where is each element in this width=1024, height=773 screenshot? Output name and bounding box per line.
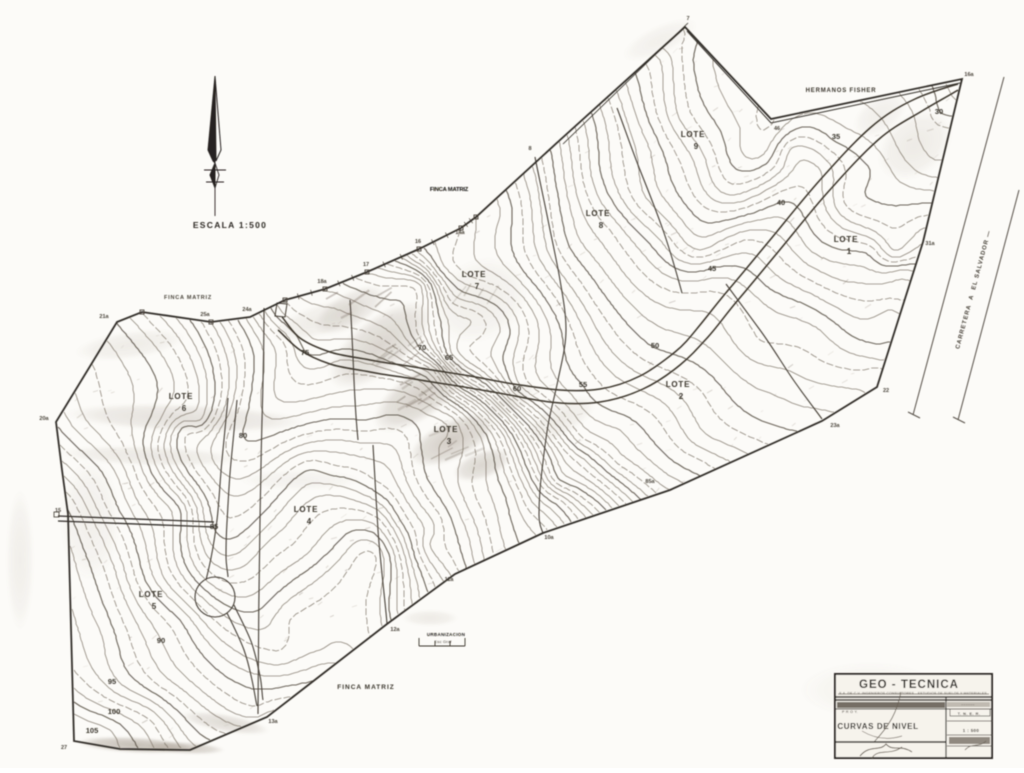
- svg-text:17: 17: [363, 262, 369, 268]
- svg-text:20a: 20a: [39, 416, 49, 422]
- svg-text:13a: 13a: [268, 719, 278, 725]
- svg-text:10a: 10a: [544, 535, 554, 541]
- svg-text:90: 90: [157, 636, 165, 645]
- svg-text:55: 55: [579, 380, 587, 389]
- svg-text:LOTE: LOTE: [462, 270, 487, 279]
- svg-text:100: 100: [108, 707, 121, 716]
- svg-text:16a: 16a: [964, 72, 974, 78]
- svg-text:1: 1: [847, 247, 852, 256]
- svg-text:18a: 18a: [317, 279, 327, 285]
- svg-text:LOTE: LOTE: [681, 130, 706, 139]
- svg-text:P R O Y.: P R O Y.: [842, 710, 858, 714]
- svg-text:T. N. E. R.: T. N. E. R.: [958, 712, 981, 716]
- svg-text:85a: 85a: [645, 479, 655, 485]
- svg-text:LOTE: LOTE: [294, 505, 319, 514]
- svg-text:6: 6: [182, 404, 187, 413]
- svg-text:85: 85: [210, 522, 218, 531]
- svg-text:3: 3: [447, 437, 452, 446]
- svg-text:16: 16: [415, 239, 421, 245]
- svg-text:FINCA MATRIZ: FINCA MATRIZ: [430, 187, 469, 193]
- svg-text:75: 75: [301, 348, 309, 357]
- svg-text:LOTE: LOTE: [834, 235, 859, 244]
- svg-text:7: 7: [475, 282, 480, 291]
- svg-text:ESCALA 1:500: ESCALA 1:500: [193, 220, 267, 230]
- svg-text:12a: 12a: [390, 627, 400, 633]
- svg-text:70: 70: [418, 343, 426, 352]
- svg-text:LOTE: LOTE: [169, 392, 194, 401]
- svg-text:22: 22: [883, 388, 889, 394]
- svg-text:35: 35: [832, 132, 840, 141]
- svg-text:Esc Graf: Esc Graf: [434, 639, 452, 644]
- svg-text:25a: 25a: [200, 312, 210, 318]
- svg-text:27: 27: [61, 745, 67, 751]
- svg-text:80: 80: [239, 431, 247, 440]
- svg-text:40: 40: [777, 198, 785, 207]
- svg-text:65: 65: [445, 353, 453, 362]
- svg-text:FINCA MATRIZ: FINCA MATRIZ: [337, 684, 395, 691]
- svg-text:8: 8: [528, 146, 531, 152]
- svg-text:23a: 23a: [830, 423, 840, 429]
- svg-text:14a: 14a: [455, 230, 465, 236]
- svg-text:2: 2: [679, 392, 684, 401]
- svg-text:FINCA MATRIZ: FINCA MATRIZ: [164, 295, 212, 301]
- svg-text:LOTE: LOTE: [434, 425, 459, 434]
- svg-text:4: 4: [307, 517, 312, 526]
- svg-text:24a: 24a: [242, 307, 252, 313]
- svg-text:60: 60: [513, 384, 521, 393]
- svg-text:45: 45: [708, 264, 716, 273]
- svg-text:15: 15: [55, 508, 61, 514]
- svg-text:50: 50: [651, 341, 659, 350]
- svg-text:95: 95: [108, 677, 116, 686]
- svg-text:HERMANOS FISHER: HERMANOS FISHER: [806, 88, 877, 94]
- svg-text:1 : 500: 1 : 500: [963, 728, 980, 733]
- svg-text:46: 46: [774, 126, 780, 132]
- svg-text:LOTE: LOTE: [586, 209, 611, 218]
- svg-text:8: 8: [599, 221, 604, 230]
- svg-text:7: 7: [686, 16, 689, 22]
- svg-text:105: 105: [86, 726, 99, 735]
- svg-text:21a: 21a: [99, 314, 109, 320]
- svg-text:URBANIZACION: URBANIZACION: [427, 632, 465, 637]
- svg-text:S.A. DE C.V. INGENIEROS CONSUL: S.A. DE C.V. INGENIEROS CONSULTORES - ES…: [839, 692, 987, 696]
- svg-text:5: 5: [152, 602, 157, 611]
- svg-text:31a: 31a: [925, 241, 935, 247]
- svg-text:9: 9: [694, 142, 699, 151]
- svg-text:11a: 11a: [445, 577, 455, 583]
- svg-text:~~~~~~: ~~~~~~: [961, 703, 975, 707]
- svg-text:LOTE: LOTE: [666, 380, 691, 389]
- svg-text:LOTE: LOTE: [139, 590, 164, 599]
- svg-text:CURVAS DE NIVEL: CURVAS DE NIVEL: [837, 722, 918, 731]
- svg-text:GEO - TECNICA: GEO - TECNICA: [859, 679, 959, 691]
- svg-text:30: 30: [935, 107, 943, 116]
